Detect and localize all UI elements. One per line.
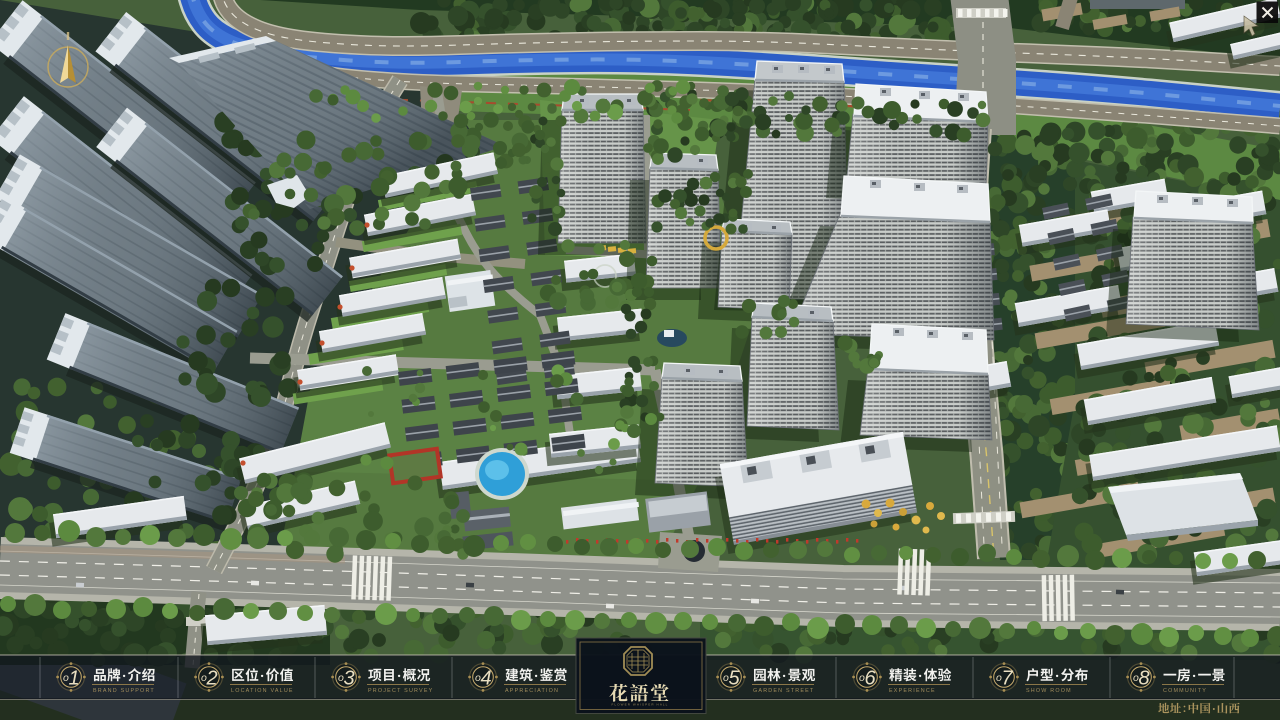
svg-text:LOCATION VALUE: LOCATION VALUE — [231, 688, 294, 694]
svg-text:8: 8 — [1139, 668, 1150, 690]
svg-text:3: 3 — [344, 668, 355, 690]
svg-text:APPRECIATION: APPRECIATION — [505, 688, 559, 694]
svg-text:FLOWER WHISPER HALL: FLOWER WHISPER HALL — [612, 703, 669, 707]
svg-text:SHOW ROOM: SHOW ROOM — [1026, 688, 1072, 694]
svg-text:6: 6 — [865, 668, 877, 690]
svg-text:GARDEN STREET: GARDEN STREET — [753, 688, 814, 694]
svg-text:BRAND SUPPORT: BRAND SUPPORT — [93, 688, 155, 694]
svg-text:7: 7 — [1002, 668, 1014, 690]
svg-text:2: 2 — [206, 668, 218, 690]
svg-text:EXPERIENCE: EXPERIENCE — [889, 688, 936, 694]
svg-text:PROJECT SURVEY: PROJECT SURVEY — [368, 688, 433, 694]
svg-text:COMMUNITY: COMMUNITY — [1163, 688, 1207, 694]
svg-text:1: 1 — [69, 668, 80, 690]
svg-text:4: 4 — [481, 668, 492, 690]
svg-text:5: 5 — [729, 668, 741, 690]
